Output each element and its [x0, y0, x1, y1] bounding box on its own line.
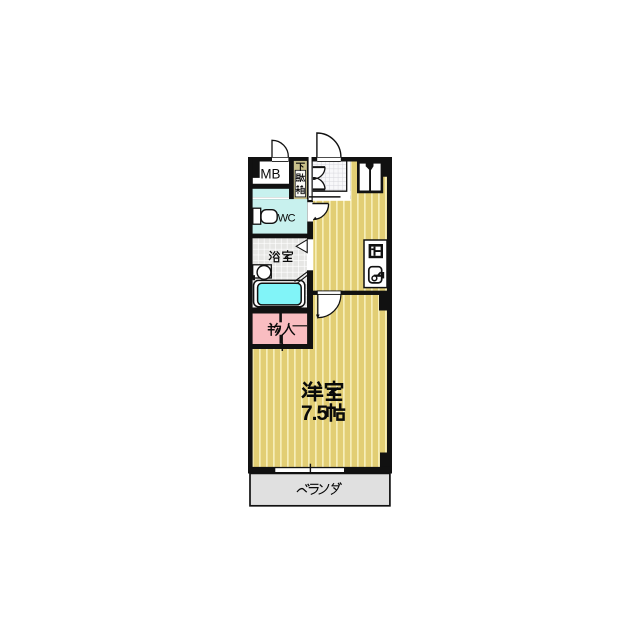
svg-text:7.5: 7.5 — [301, 402, 329, 425]
svg-text:WC: WC — [278, 213, 296, 225]
svg-text:MB: MB — [260, 166, 280, 181]
